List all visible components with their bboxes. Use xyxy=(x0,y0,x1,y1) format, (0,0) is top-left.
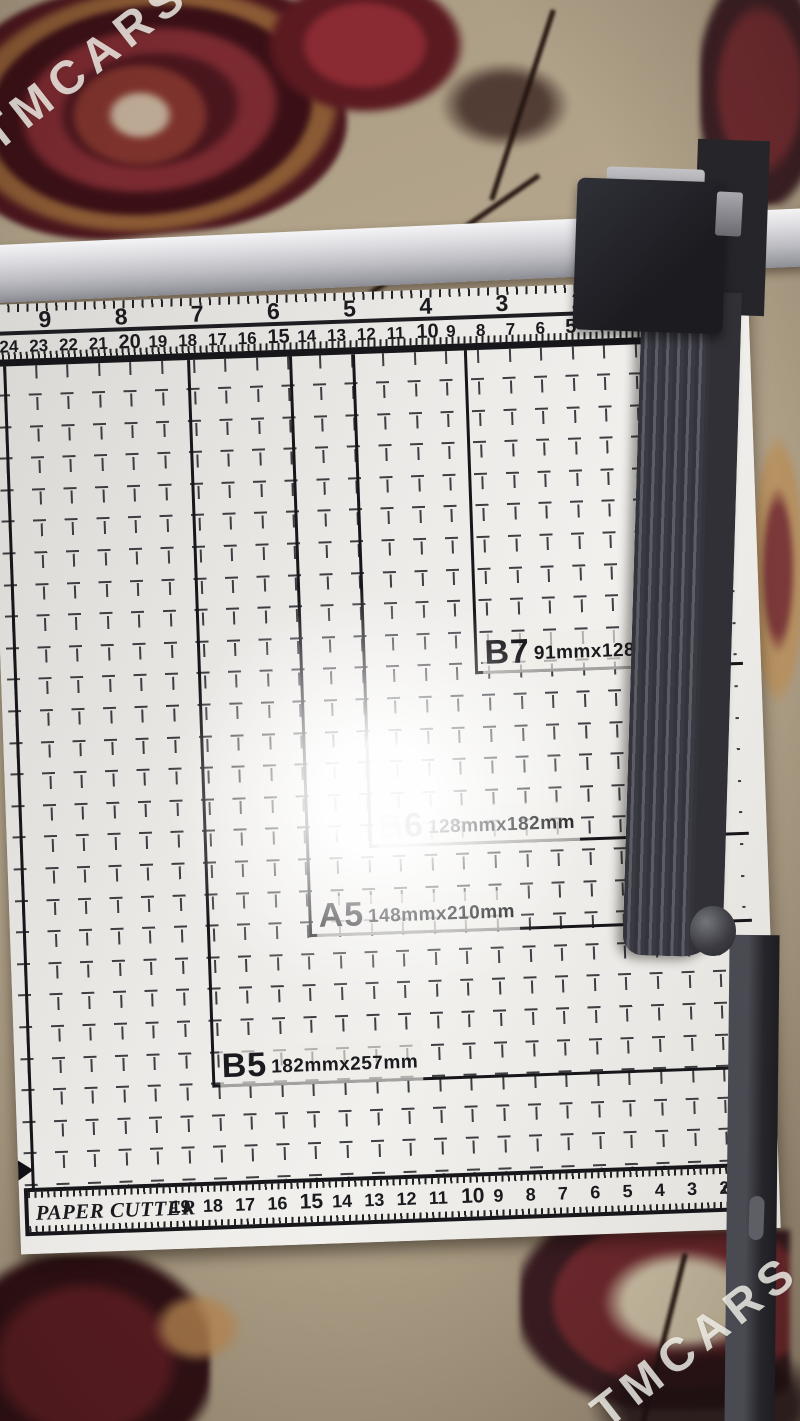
bottom-ruler-number: 18 xyxy=(203,1195,224,1217)
size-box-vertical-line xyxy=(289,356,312,937)
cutter-handle-block xyxy=(572,177,727,334)
cutter-blade-rail-bottom xyxy=(724,935,779,1421)
paper-cutter-photo: 98765432 2423222120191817161514131211109… xyxy=(0,0,800,1421)
paper-size-dimensions: 182mmx257mm xyxy=(271,1051,419,1077)
grid-dashed-line-horizontal xyxy=(2,496,732,523)
paper-size-label: B6128mmx182mm xyxy=(376,801,580,848)
bottom-ruler-number: 10 xyxy=(461,1184,485,1209)
bottom-ruler-number: 5 xyxy=(622,1181,633,1202)
bottom-ruler-number: 14 xyxy=(332,1191,353,1213)
paper-size-label: B5182mmx257mm xyxy=(219,1040,423,1087)
grid-dashed-line-horizontal xyxy=(24,1127,754,1154)
grid-dashed-line-horizontal xyxy=(18,969,748,996)
carpet-motif-dark-specks xyxy=(430,55,580,155)
bottom-ruler-number: 15 xyxy=(299,1190,323,1215)
bottom-ruler-number: 4 xyxy=(654,1180,665,1201)
grid-dashed-line-horizontal xyxy=(3,527,733,554)
bottom-ruler-number: 17 xyxy=(235,1194,256,1216)
paper-size-code: B5 xyxy=(221,1046,268,1087)
bottom-ruler-number: 11 xyxy=(428,1188,448,1210)
bottom-ruler-number: 8 xyxy=(525,1184,536,1205)
size-box-vertical-line xyxy=(464,350,478,674)
bottom-ruler-number: 6 xyxy=(590,1182,601,1203)
grid-dashed-line-horizontal xyxy=(0,369,727,396)
handle-end-knob xyxy=(690,906,736,956)
grid-dashed-line-horizontal xyxy=(0,464,730,491)
cutter-handle-grip xyxy=(622,290,742,958)
size-box-vertical-line xyxy=(352,354,372,848)
grid-dashed-line-horizontal xyxy=(0,401,728,428)
bottom-ruler-number: 19 xyxy=(170,1196,191,1218)
rail-slot-hole xyxy=(748,1196,765,1240)
bottom-ruler-number: 13 xyxy=(364,1190,385,1212)
carpet-motif-tan-accent xyxy=(150,1290,245,1365)
grid-dashed-line-horizontal xyxy=(5,590,735,617)
bottom-ruler-number: 16 xyxy=(267,1193,288,1215)
grid-dashed-line-horizontal xyxy=(23,1096,753,1123)
paper-size-code: A5 xyxy=(318,895,365,936)
grid-dashed-line-horizontal xyxy=(8,685,738,712)
grid-dashed-line-horizontal xyxy=(19,1001,749,1028)
bottom-ruler-number: 12 xyxy=(396,1189,417,1211)
paper-size-code: B6 xyxy=(378,806,425,847)
bottom-ruler-number: 7 xyxy=(558,1183,569,1204)
paper-size-label: A5148mmx210mm xyxy=(316,890,520,937)
grid-dashed-line-horizontal xyxy=(0,432,729,459)
paper-size-dimensions: 148mmx210mm xyxy=(368,901,516,927)
grid-dashed-line-horizontal xyxy=(4,559,734,586)
paper-size-code: B7 xyxy=(484,632,531,673)
blade-pivot-metal-right xyxy=(715,191,743,236)
size-box-vertical-line xyxy=(187,360,215,1088)
bottom-ruler-number: 3 xyxy=(687,1179,698,1200)
paper-size-dimensions: 128mmx182mm xyxy=(428,812,576,838)
bottom-ruler-number: 9 xyxy=(493,1186,504,1207)
edge-arrow-marker xyxy=(18,1160,34,1181)
